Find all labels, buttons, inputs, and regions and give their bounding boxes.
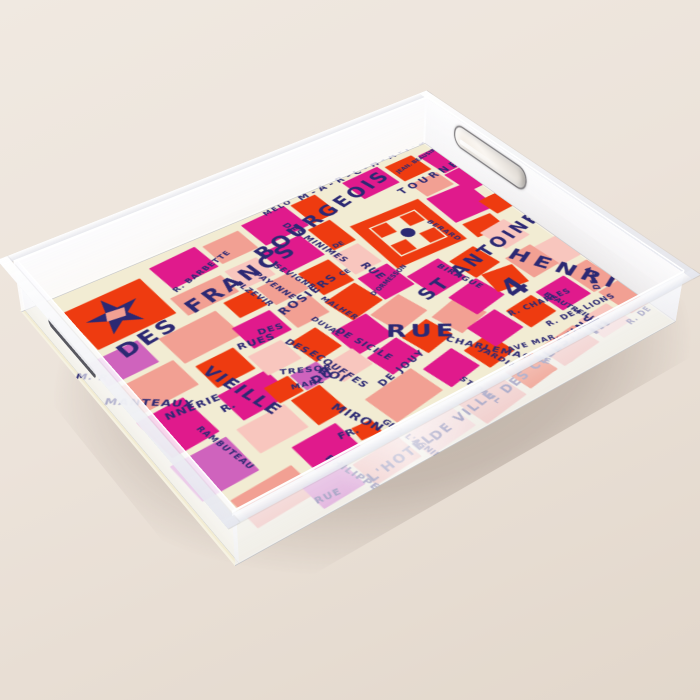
courtyard-block (391, 239, 417, 255)
street-label: RUES (235, 332, 277, 351)
place-des-vosges-dot (398, 226, 419, 238)
map-block (236, 404, 309, 454)
map-block (323, 348, 373, 382)
map-block (195, 347, 255, 388)
street-label: DES (283, 338, 313, 355)
street-label: RAMBUTEAU (193, 426, 255, 472)
map-block (217, 370, 292, 421)
map-block (248, 340, 302, 376)
map-block (291, 385, 348, 426)
street-label: DUVAL (308, 316, 343, 338)
product-photo-scene: DESFRANCSBOURGEOISM-A-R-C-H-A-I-SMELODES… (0, 0, 700, 700)
map-block (423, 348, 480, 387)
street-label: R. (218, 400, 237, 414)
map-block (290, 361, 333, 390)
map-block (159, 311, 243, 364)
street-label: RUE (386, 322, 458, 340)
street-label: ROI (315, 366, 349, 384)
map-block (331, 313, 394, 355)
map-block (402, 319, 453, 353)
street-label: DES (112, 315, 184, 361)
map-block (264, 376, 304, 404)
street-label: DE JOUY (376, 348, 428, 388)
street-label: FR. (336, 426, 361, 442)
street-label: DE SICILE (333, 327, 395, 362)
courtyard-block (371, 222, 397, 237)
street-label: MIRON (328, 402, 386, 434)
street-label: VIEILLE (198, 364, 286, 418)
street-label: MARC (290, 378, 326, 392)
place-des-vosges-courtyard (369, 209, 448, 256)
street-label: ECOUFFES (306, 349, 370, 389)
map-block (464, 334, 515, 368)
street-label: NNERIE (163, 392, 223, 421)
map-block (290, 327, 342, 362)
courtyard-block (399, 211, 425, 226)
street-label: TRESOR (279, 365, 333, 377)
street-label: DES (256, 322, 286, 336)
handle-glint (459, 139, 500, 172)
street-label: DU (309, 368, 336, 386)
map-block (367, 337, 422, 375)
